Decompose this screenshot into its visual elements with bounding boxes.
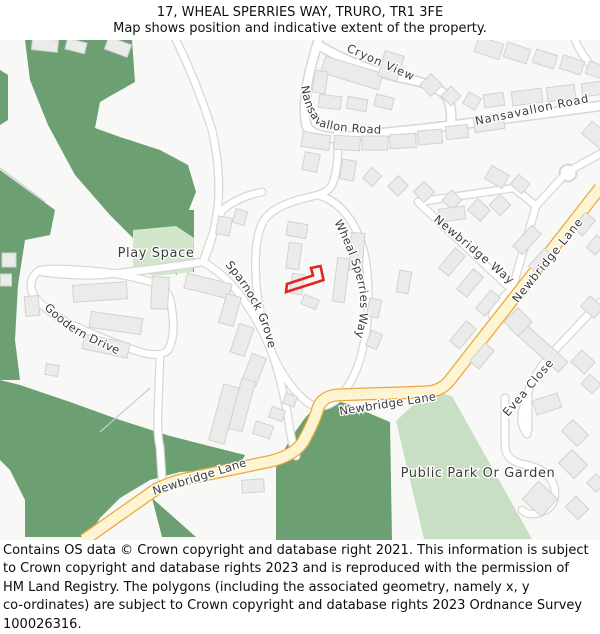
area-label-public-park: Public Park Or Garden bbox=[401, 466, 556, 481]
map-svg: Cryon View Nansavallon Road Nansavallon … bbox=[0, 40, 600, 540]
map-description: Map shows position and indicative extent… bbox=[0, 21, 600, 37]
footer-line: Contains OS data © Crown copyright and d… bbox=[3, 542, 600, 560]
property-address-title: 17, WHEAL SPERRIES WAY, TRURO, TR1 3FE bbox=[0, 5, 600, 21]
footer-line: HM Land Registry. The polygons (includin… bbox=[3, 579, 600, 597]
area-label-play-space: Play Space bbox=[118, 246, 195, 261]
copyright-footer: Contains OS data © Crown copyright and d… bbox=[0, 540, 600, 625]
footer-line: to Crown copyright and database rights 2… bbox=[3, 560, 600, 578]
map-canvas: Cryon View Nansavallon Road Nansavallon … bbox=[0, 40, 600, 540]
footer-line: co-ordinates) are subject to Crown copyr… bbox=[3, 597, 600, 615]
map-header: 17, WHEAL SPERRIES WAY, TRURO, TR1 3FE M… bbox=[0, 0, 600, 40]
